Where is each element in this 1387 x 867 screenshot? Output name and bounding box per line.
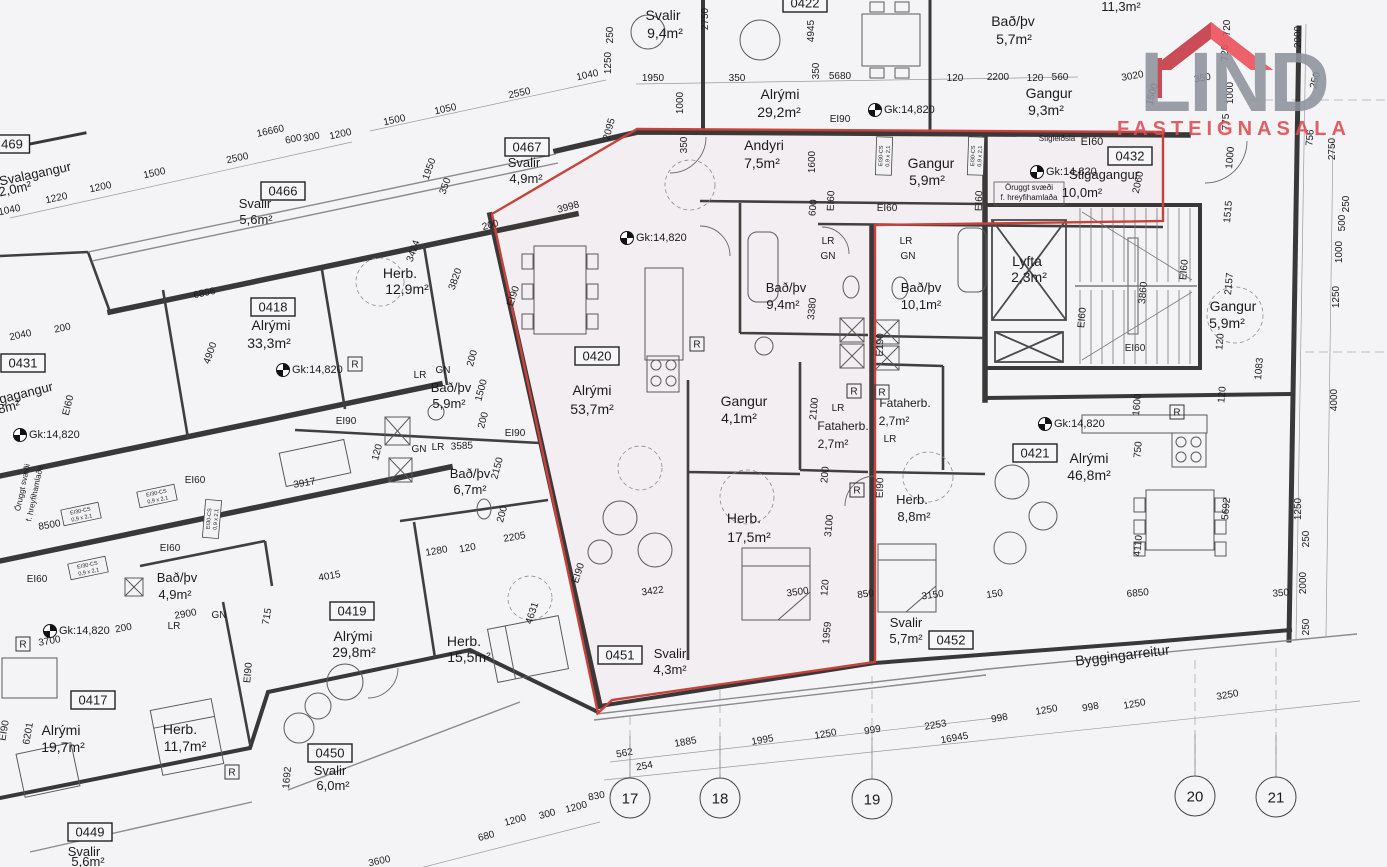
plan-label: 1200 [88,180,112,195]
plan-label: 350 [1272,587,1290,599]
elevation-marker: Gk:14,820 [14,429,80,442]
unit-number: 0451 [606,648,635,663]
plan-label: 2100 [808,397,821,421]
plan-label: 46,8m² [1067,467,1111,483]
plan-label: 1950 [421,156,439,181]
plan-label: 1250 [1331,285,1342,308]
plan-label: 3424 [405,238,423,263]
plan-label: LR [414,370,427,381]
plan-label: 1250 [1293,497,1304,520]
plan-label: Stigleiðsla [1039,134,1076,143]
unit-number: 0431 [9,356,38,371]
plan-label: 1040 [575,68,599,83]
plan-label: EI60 [1081,136,1104,148]
plan-label: f. hreyfihamlaða [1001,193,1058,202]
plan-label: 4900 [202,340,220,365]
unit-number: 469 [1,137,23,152]
plan-label: 5,9m² [1209,315,1245,331]
plan-label: LR [822,236,835,247]
floorplan-page: Svalir9,4m²Alrými29,2m²Andyri7,5m²Bað/þv… [0,0,1387,867]
unit-number: 0466 [269,184,298,199]
plan-label: 11,3m² [1101,0,1141,14]
plan-label: 19,7m² [41,739,85,755]
plan-label: 11,7m² [164,738,207,754]
elevation-marker: Gk:14,820 [869,104,935,117]
elevation-value: Gk:14,820 [1046,166,1097,178]
r-tag: R [693,340,700,351]
plan-label: 7,5m² [744,155,780,171]
plan-label: 15,5m² [447,649,491,665]
plan-label: 600 [284,132,303,146]
plan-label: Svalir [890,615,923,630]
plan-label: 1500 [382,113,406,128]
plan-label: 120 [1214,333,1226,351]
grid-number: 18 [712,791,729,808]
unit-number: 0420 [583,349,612,364]
plan-label: 750 [1132,441,1144,459]
plan-label: 2750 [700,7,711,30]
plan-label: 350 [1193,72,1212,86]
plan-label: 6201 [21,721,36,745]
elevation-value: Gk:14,820 [1054,418,1105,430]
plan-label: 3250 [1216,688,1240,703]
plan-label: EI60 [185,475,206,486]
plan-label: 3380 [806,297,819,321]
plan-label: Herb. [447,633,481,649]
plan-label: 1250 [1035,703,1059,718]
plan-label: 4000 [1329,388,1340,411]
svg-text:EI30-CS: EI30-CS [878,145,885,166]
r-tag: R [1173,408,1180,419]
plan-label: 4015 [318,569,342,584]
plan-label: 1050 [433,102,457,117]
grid-number: 19 [864,792,881,809]
plan-label: 1083 [1253,357,1266,381]
plan-label: 250 [1341,195,1352,212]
plan-label: GN [436,365,451,376]
plan-label: 3917 [293,476,317,491]
plan-label: 5,9m² [909,172,945,188]
plan-label: 300 [538,807,557,822]
plan-label: 1692 [281,766,294,790]
plan-label: 1885 [674,735,698,750]
unit-number: 0419 [338,604,367,619]
unit-number: 0417 [79,693,108,708]
plan-label: Bað/þv [450,466,491,481]
plan-label: 29,2m² [757,104,801,120]
plan-label: 250 [1301,530,1312,547]
plan-label: EI90 [505,428,526,439]
svg-text:0,9 x 2,1: 0,9 x 2,1 [885,146,892,167]
plan-label: Svalir [508,155,541,170]
plan-label: 10,0m² [1062,185,1103,200]
grid-number: 21 [1268,790,1285,807]
r-tag: R [19,640,26,651]
plan-label: 120 [1216,386,1228,404]
elevation-value: Gk:14,820 [59,625,110,637]
plan-label: 53,7m² [570,401,614,417]
plan-label: Bað/þv [901,280,942,295]
plan-label: 29,8m² [332,644,376,660]
plan-label: 1500 [473,378,489,403]
plan-label: Bað/þv [431,380,472,395]
plan-label: 120 [458,542,477,556]
plan-label: 600 [807,199,819,217]
unit-number: 0422 [791,0,820,11]
plan-label: 999 [863,724,882,738]
fire-door-tag: EI30-CS0,9 x 2,1 [967,137,984,176]
fire-door-tag: EI30-CS0,9 x 2,1 [137,484,177,508]
plan-label: EI60 [877,203,898,214]
plan-label: 120 [819,579,831,597]
plan-label: Gangur [721,393,768,409]
plan-label: EI60 [826,190,838,211]
elevation-marker: Gk:14,820 [1031,166,1097,179]
elevation-marker: Gk:14,820 [44,625,110,638]
plan-label: 2253 [924,718,948,733]
plan-label: Alrými [573,382,612,398]
plan-label: EI60 [974,190,986,211]
plan-label: 6,7m² [453,482,487,497]
plan-label: GN [412,444,427,455]
plan-label: 17,5m² [727,529,771,545]
plan-label: 5692 [1220,497,1233,521]
plan-label: 1600 [1131,393,1144,417]
plan-label: 250 [605,26,616,43]
plan-label: 200 [476,410,491,429]
plan-label: 1200 [564,799,589,815]
r-tag: R [850,387,857,398]
plan-label: 3860 [1137,281,1150,305]
plan-label: Bað/þv [991,13,1035,29]
plan-label: EI90 [242,662,255,684]
plan-label: 1995 [751,733,775,748]
fire-door-tag: EI30-CS0,9 x 2,1 [68,556,108,580]
plan-label: E190 [875,333,887,357]
plan-label: 3820 [447,266,465,291]
unit-number: 0418 [259,300,288,315]
plan-label: 2200 [987,72,1010,83]
plan-label: 3150 [921,588,945,602]
plan-label: 5,7m² [889,631,923,646]
plan-label: Herb. [727,510,761,526]
plan-label: 562 [615,747,634,761]
plan-label: 680 [477,829,496,844]
plan-label: LR [832,403,845,414]
plan-label: 1200 [503,812,528,828]
plan-label: 1500 [1144,82,1160,107]
unit-number: 0450 [316,746,345,761]
elevation-value: Gk:14,820 [292,364,343,376]
fire-door-tag: EI30-CS0,9 x 2,1 [875,137,892,176]
plan-label: EI60 [27,574,48,585]
plan-label: Gangur [908,155,955,171]
plan-label: 4,1m² [721,410,757,426]
plan-label: 1515 [1222,200,1235,224]
plan-label: LR [168,621,181,632]
plan-label: 1950 [642,73,665,84]
elevator [992,220,1066,362]
plan-label: 120 [947,73,964,84]
fire-door-tag: EI30-CS0,9 x 2,1 [202,499,221,538]
plan-label: 2150 [489,456,505,481]
r-tag: R [351,360,358,371]
plan-label: EI90 [830,114,851,125]
plan-label: 4,3m² [653,662,687,677]
plan-label: 33,3m² [247,335,291,351]
plan-label: 9,3m² [1028,102,1064,118]
plan-label: 6,0m² [316,778,350,793]
plan-label: 150 [986,588,1004,601]
plan-label: 4,9m² [158,587,192,602]
plan-label: 500 [1337,214,1348,231]
plan-label: Svalir [654,646,687,661]
plan-label: 5680 [829,71,852,82]
plan-label: Alrými [334,628,373,644]
plan-label: 1250 [814,727,838,742]
plan-label: 300 [302,130,321,144]
r-tag: R [228,768,235,779]
plan-label: 5,7m² [996,31,1032,47]
plan-label: 3585 [450,440,473,452]
plan-label: 998 [1081,701,1100,715]
plan-label: Herb. [896,492,928,507]
plan-label: Bað/þv [157,570,198,585]
plan-label: EI90 [0,719,12,742]
plan-label: 715 [261,607,275,626]
plan-label: 350 [729,73,746,84]
plan-label: LR [884,434,897,445]
plan-label: 2750 [1327,137,1338,160]
plan-label: 2,7m² [879,414,910,428]
svg-text:EI30-CS: EI30-CS [970,145,977,166]
plan-label: 3020 [1121,69,1145,84]
plan-label: EI60 [1125,343,1146,354]
unit-number: 0421 [1021,446,1050,461]
plan-label: 120 [1027,73,1044,84]
plan-label: 254 [635,760,654,774]
plan-label: 2900 [174,607,198,622]
plan-label: 6896 [192,286,216,301]
plan-label: 9,4m² [766,297,800,312]
plan-label: Andyri [744,137,784,153]
plan-label: Svalir [645,7,680,23]
svg-text:0,9 x 2,1: 0,9 x 2,1 [977,146,984,167]
plan-label: Lyfta [1012,253,1042,269]
grid-number: 17 [622,791,639,808]
plan-label: 3600 [367,854,391,867]
elevation-value: Gk:14,820 [884,104,935,116]
plan-label: 560 [1052,72,1069,83]
plan-label: Gangur [1026,85,1073,101]
unit-number: 0432 [1116,149,1145,164]
plan-label: 1000 [1334,240,1345,263]
plan-label: Alrými [761,86,800,102]
staircase [1075,208,1197,364]
elevation-value: Gk:14,820 [636,232,687,244]
grid-bubble-layer: 1718192021 [610,734,1296,819]
elevation-marker: Gk:14,820 [1039,418,1105,431]
plan-label: Fataherb. [817,419,868,433]
plan-label: Herb. [163,721,197,737]
elevation-value: Gk:14,820 [29,429,80,441]
unit-number: 0467 [513,140,542,155]
plan-label: 200 [114,622,133,636]
plan-label: LR [432,442,445,453]
unit-number: 0449 [76,825,105,840]
fire-door-tag: EI30-CS0,9 x 2,1 [61,502,101,526]
plan-label: GN [212,610,227,621]
plan-label: 4945 [806,19,817,42]
plan-label: 2,3m² [1011,269,1047,285]
plan-label: 2000 [1293,25,1304,48]
plan-label: GN [821,251,836,262]
plan-label: 6850 [1126,587,1150,600]
plan-label: 5,6m² [239,212,273,227]
plan-label: 10,1m² [901,297,942,312]
plan-label: EI90 [336,416,357,427]
plan-label: 4110 [1132,534,1145,557]
plan-label: 3100 [823,514,836,538]
plan-label: Bað/þv [766,280,807,295]
plan-label: EI60 [1076,307,1089,329]
plan-label: 726 [1220,44,1231,61]
plan-label: Alrými [252,317,291,333]
plan-label: EI90 [875,477,887,498]
plan-label: 2157 [1223,272,1236,296]
plan-label: 1959 [821,621,834,645]
plan-label: 1280 [425,544,449,559]
plan-label: 1250 [1123,697,1147,712]
plan-label: Alrými [1070,450,1109,466]
plan-label: 775 [1221,113,1232,130]
plan-label: 16660 [256,123,286,140]
plan-label: 1000 [675,91,686,114]
plan-label: Alrými [42,722,81,738]
plan-label: 1000 [1224,146,1237,170]
plan-label: 1250 [603,51,614,74]
plan-label: 1220 [44,191,68,206]
plan-label: 1000 [1225,81,1236,104]
plan-label: 200 [53,321,72,335]
plan-label: 2000 [1298,571,1309,594]
plan-label: Fataherb. [879,396,930,410]
unit-number: 0452 [937,633,966,648]
floorplan-drawing: Svalir9,4m²Alrými29,2m²Andyri7,5m²Bað/þv… [0,0,1387,867]
plan-label: 350 [679,136,690,153]
plan-label: 9,4m² [647,25,683,41]
elevation-marker: Gk:14,820 [621,232,687,245]
plan-label: 1200 [328,127,352,142]
plan-label: 2205 [503,530,527,545]
plan-label: 200 [465,348,480,367]
r-tag: R [853,486,860,497]
plan-label: 5,9m² [432,396,466,411]
plan-label: 1600 [807,150,818,173]
plan-label: Svalir [314,763,347,778]
plan-label: LR [900,236,913,247]
plan-label: 830 [587,790,606,804]
plan-label: 120 [370,442,385,461]
plan-label: 12,9m² [385,281,429,297]
plan-label: 250 [1308,70,1323,89]
plan-label: 8500 [38,518,62,533]
plan-label: GN [901,251,916,262]
plan-label: Öruggt svæði [1005,183,1053,192]
r-tag: R [878,388,885,399]
plan-label: EI60 [160,543,181,554]
plan-label: 5,6m² [71,854,105,867]
plan-label: EI60 [1178,259,1191,281]
plan-label: 4,9m² [509,171,543,186]
plan-label: Herb. [383,265,417,281]
elevation-marker: Gk:14,820 [277,364,343,377]
plan-label: 998 [990,712,1009,726]
plan-label: 756 [1304,129,1316,147]
plan-label: 200 [819,466,831,484]
plan-label: Gangur [1210,298,1257,314]
plan-label: 2500 [225,151,249,166]
plan-label: 250 [1301,618,1312,635]
plan-label: 2,7m² [818,437,849,451]
plan-label: 350 [811,62,822,79]
plan-label: EI60 [61,394,77,417]
plan-label: 16945 [940,731,970,747]
plan-label: 8,8m² [897,509,931,524]
plan-label: 2040 [8,328,32,343]
grid-number: 20 [1187,789,1204,806]
plan-label: 1500 [142,166,166,181]
plan-label: 720 [1222,19,1233,36]
plan-label: 2550 [507,86,531,101]
plan-label: 4631 [524,601,541,626]
